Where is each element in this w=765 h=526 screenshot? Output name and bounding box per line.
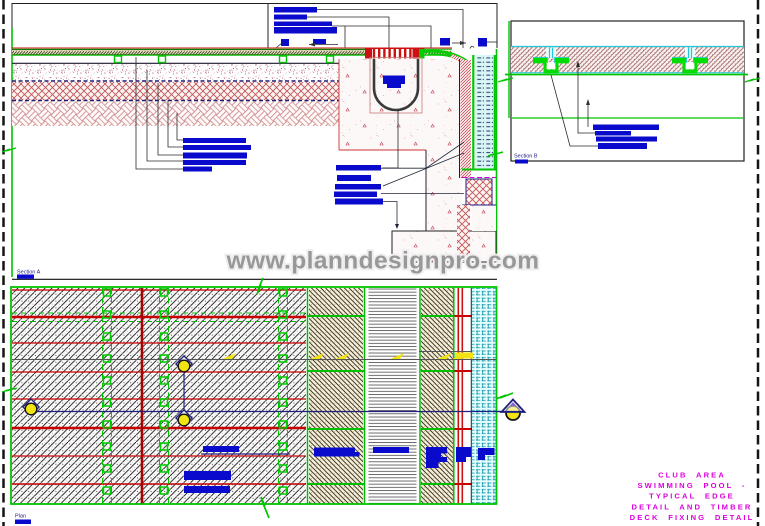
svg-text:DETAIL AND TIMBER: DETAIL AND TIMBER bbox=[632, 502, 753, 511]
svg-text:www.planndesignpro.com: www.planndesignpro.com bbox=[226, 248, 540, 275]
svg-text:Plan: Plan bbox=[15, 514, 26, 520]
svg-text:Section B: Section B bbox=[514, 154, 538, 160]
svg-text:TYPICAL EDGE: TYPICAL EDGE bbox=[649, 492, 735, 501]
svg-text:SWIMMING POOL -: SWIMMING POOL - bbox=[637, 481, 746, 490]
svg-text:CLUB AREA: CLUB AREA bbox=[658, 471, 726, 480]
svg-text:DECK FIXING DETAIL: DECK FIXING DETAIL bbox=[630, 513, 755, 522]
